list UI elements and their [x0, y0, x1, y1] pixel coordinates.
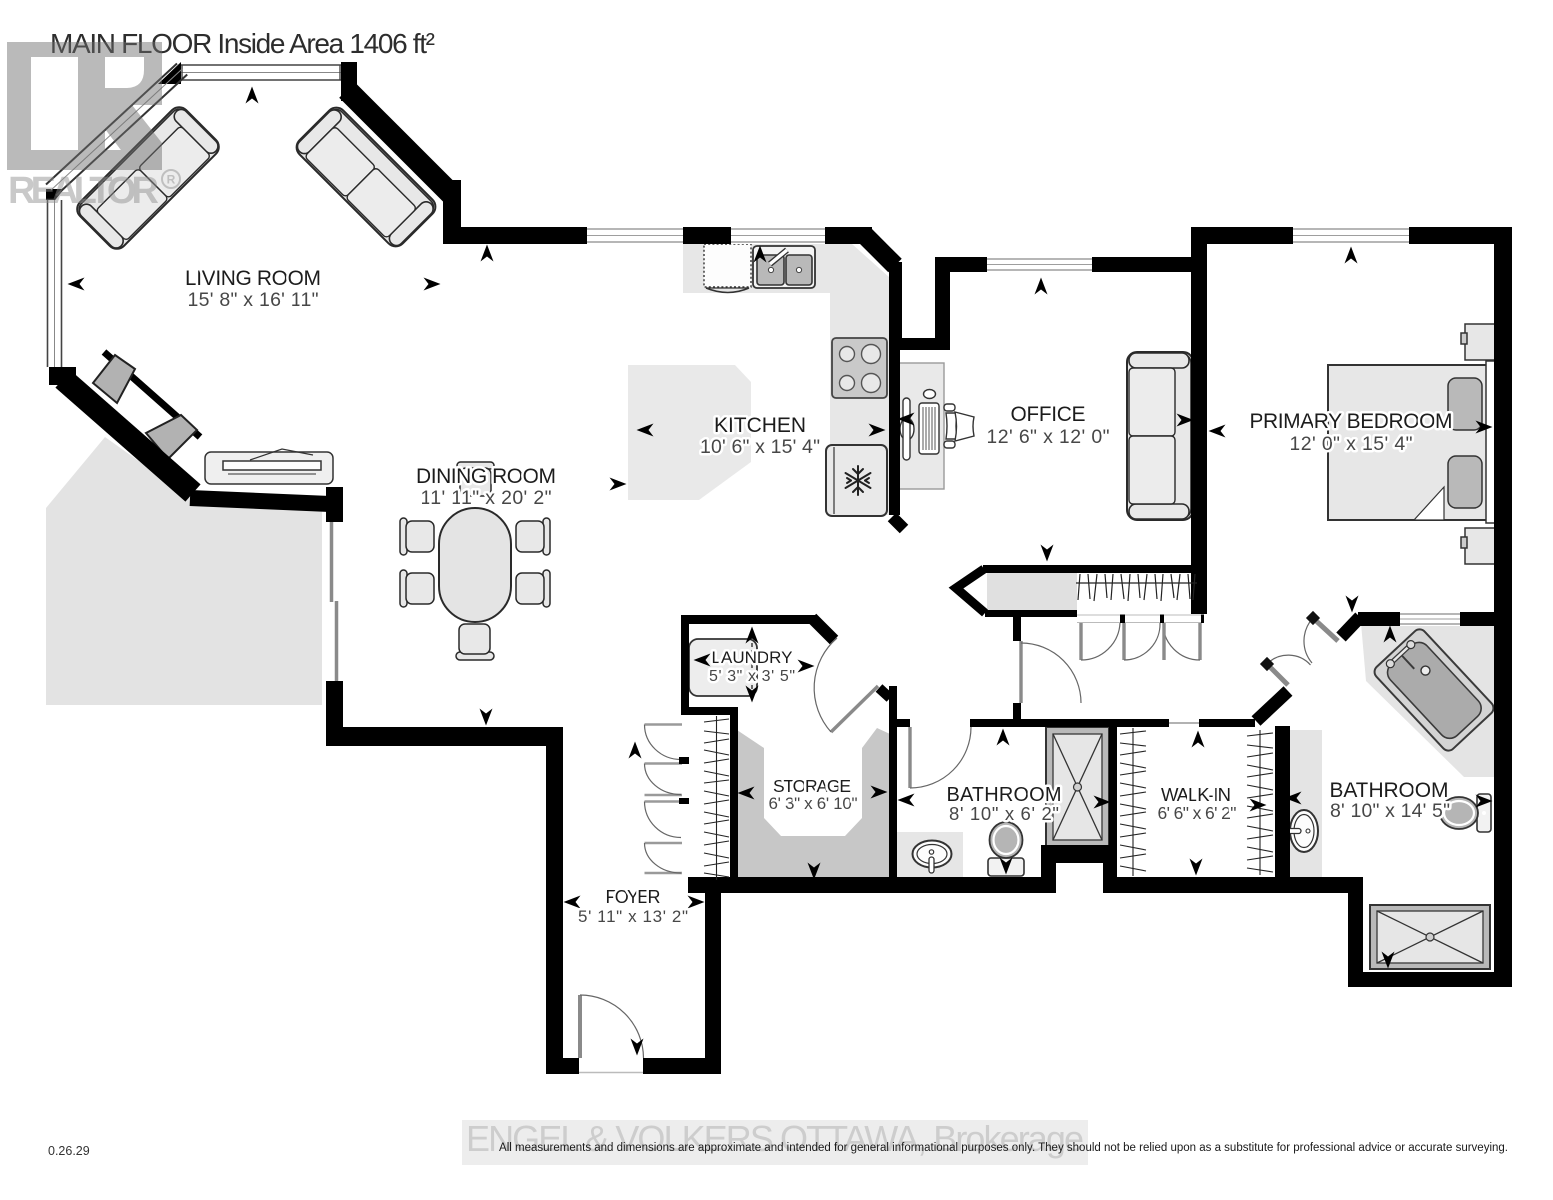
- svg-text:6' 3" x 6' 10": 6' 3" x 6' 10": [769, 794, 858, 813]
- svg-text:KITCHEN: KITCHEN: [714, 414, 806, 437]
- svg-text:8' 10" x 6' 2": 8' 10" x 6' 2": [949, 803, 1059, 824]
- svg-text:15' 8" x 16' 11": 15' 8" x 16' 11": [188, 289, 319, 311]
- svg-text:R: R: [167, 173, 176, 187]
- svg-text:10' 6" x 15' 4": 10' 6" x 15' 4": [700, 436, 820, 458]
- svg-text:BATHROOM: BATHROOM: [1330, 779, 1449, 802]
- svg-text:WALK-IN: WALK-IN: [1161, 784, 1231, 805]
- svg-text:0.26.29: 0.26.29: [48, 1144, 90, 1158]
- svg-text:PRIMARY BEDROOM: PRIMARY BEDROOM: [1250, 410, 1453, 433]
- svg-text:8' 10" x 14' 5": 8' 10" x 14' 5": [1330, 800, 1450, 822]
- svg-text:All measurements and dimension: All measurements and dimensions are appr…: [499, 1142, 1508, 1154]
- svg-text:12' 6" x 12' 0": 12' 6" x 12' 0": [987, 426, 1110, 448]
- svg-text:REALTOR: REALTOR: [8, 170, 160, 212]
- svg-text:6' 6" x 6' 2": 6' 6" x 6' 2": [1158, 803, 1237, 823]
- svg-text:OFFICE: OFFICE: [1011, 403, 1086, 426]
- svg-text:STORAGE: STORAGE: [773, 776, 851, 796]
- svg-text:LAUNDRY: LAUNDRY: [712, 648, 793, 667]
- svg-text:5' 11" x 13' 2": 5' 11" x 13' 2": [578, 907, 688, 926]
- svg-text:FOYER: FOYER: [606, 887, 661, 907]
- svg-text:11' 11" x 20' 2": 11' 11" x 20' 2": [421, 487, 552, 509]
- svg-text:DINING ROOM: DINING ROOM: [416, 465, 556, 488]
- svg-text:LIVING ROOM: LIVING ROOM: [185, 267, 321, 290]
- svg-text:12' 0" x 15' 4": 12' 0" x 15' 4": [1290, 433, 1413, 455]
- svg-text:5' 3" x 3' 5": 5' 3" x 3' 5": [709, 668, 795, 685]
